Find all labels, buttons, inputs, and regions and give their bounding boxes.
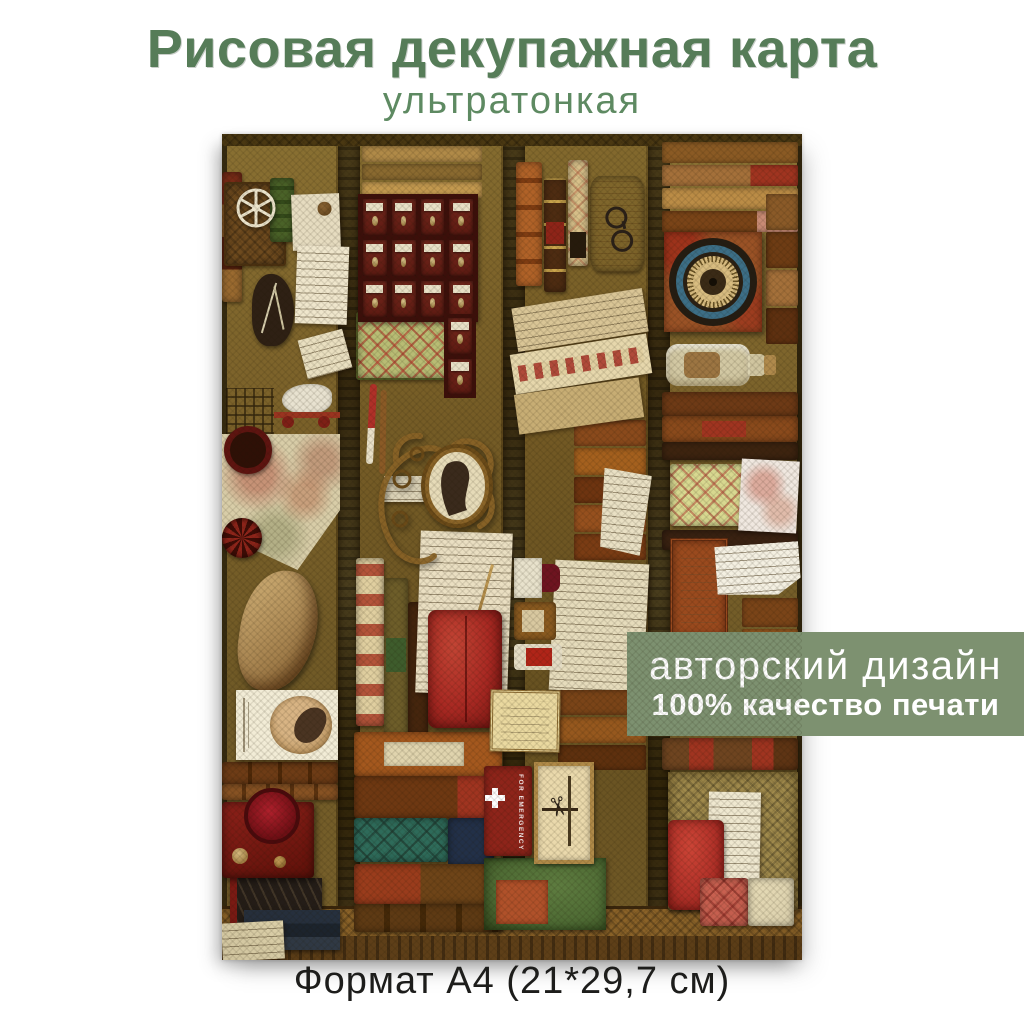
small-bottle	[514, 644, 562, 670]
book-spine	[662, 142, 798, 163]
folded-letter	[714, 541, 801, 599]
toy-wheel	[318, 416, 330, 428]
banner-line-1: авторский дизайн	[649, 645, 1002, 687]
red-cross-icon	[485, 795, 505, 801]
cream-planks	[222, 920, 285, 960]
book-spine	[362, 146, 482, 162]
book-spine	[362, 164, 482, 180]
book-inset-panel	[496, 880, 548, 924]
catalog-drawer	[391, 280, 417, 318]
bottle-cork	[764, 355, 776, 375]
portrait-hair	[289, 702, 330, 748]
first-aid-box: FOR EMERGENCY	[484, 766, 532, 856]
bottle-contents	[684, 352, 720, 378]
film-reel	[234, 184, 278, 232]
product-title: Рисовая декупажная карта	[0, 18, 1024, 80]
book-stack	[362, 146, 482, 198]
cream-book	[748, 878, 794, 926]
card-catalog-cabinet	[358, 194, 478, 322]
catalog-drawer	[391, 198, 417, 236]
tools-display-box: ✂	[534, 762, 594, 864]
spine-label	[546, 222, 564, 244]
catalog-drawer	[447, 317, 473, 355]
apothecary-label-book	[489, 689, 560, 752]
striped-book-spine	[356, 558, 384, 726]
catalog-drawer	[448, 198, 474, 236]
format-caption: Формат А4 (21*29,7 см)	[0, 960, 1024, 1003]
ornament-strip	[518, 346, 645, 382]
spine-label	[384, 742, 464, 766]
book-spine	[766, 232, 798, 268]
book-spine-row	[222, 762, 338, 784]
card-catalog-extension	[444, 314, 476, 398]
patterned-book-cover	[356, 312, 450, 380]
dial-hub	[709, 278, 717, 286]
green-cloth-book	[484, 858, 606, 930]
bottle-glass	[542, 564, 560, 592]
book-spine	[766, 308, 798, 344]
bottle-label	[522, 610, 544, 632]
catalog-drawer	[420, 280, 446, 318]
spine-label	[570, 232, 586, 258]
patterned-book-spine	[568, 160, 588, 266]
product-subtitle: ультратонкая	[0, 80, 1024, 123]
catalog-drawer	[362, 198, 388, 236]
book-spine	[742, 598, 798, 627]
toy-wheel	[282, 416, 294, 428]
velvet-seam	[465, 616, 467, 722]
book-spine-row	[354, 776, 502, 818]
catalog-drawer	[448, 239, 474, 277]
pocket-watch-and-keys	[252, 274, 294, 346]
compass-dial	[669, 238, 757, 326]
label-text-lines	[501, 701, 550, 742]
catalog-drawer	[447, 358, 473, 396]
brass-knob	[274, 856, 286, 868]
toy-horse-body	[282, 384, 332, 414]
catalog-drawer	[362, 280, 388, 318]
book-spine-row	[354, 904, 502, 932]
bottle-label	[526, 648, 552, 666]
catalog-drawer	[420, 239, 446, 277]
cover-label-lines	[681, 551, 717, 625]
book-spine-row	[354, 864, 502, 904]
vintage-card	[291, 193, 341, 251]
bottle-label	[514, 558, 542, 598]
book-stack	[766, 194, 798, 344]
baroque-frame	[372, 424, 507, 574]
wooden-boot-form	[232, 565, 324, 696]
glass-bottle	[666, 344, 776, 386]
wax-seal	[317, 201, 331, 215]
book-spine	[662, 165, 798, 186]
compass-plate	[664, 232, 762, 332]
product-poster: Рисовая декупажная карта ультратонкая	[0, 0, 1024, 1024]
spine-label	[386, 638, 406, 672]
brass-knob	[232, 848, 248, 864]
leather-book-spine	[516, 162, 542, 286]
watch-chain	[273, 286, 284, 329]
book-spine	[384, 578, 408, 736]
amber-bottle	[514, 602, 556, 640]
portrait-oval	[270, 696, 332, 754]
card-text-line	[243, 698, 245, 752]
camera-reel-knob	[244, 788, 300, 844]
book-spine-row	[662, 442, 798, 460]
spine-label	[702, 421, 746, 437]
emergency-label: FOR EMERGENCY	[517, 774, 524, 851]
vintage-camera	[222, 802, 314, 878]
teal-patterned-book	[354, 818, 448, 862]
book-spine-row	[354, 732, 502, 776]
banner-line-2: 100% качество печати	[651, 687, 999, 723]
catalog-drawer	[448, 280, 474, 318]
red-spool-wheel	[224, 426, 272, 474]
pink-patterned-book	[700, 878, 748, 926]
vintage-card	[295, 245, 350, 325]
book-spine-row	[662, 738, 798, 770]
red-rosette-wheel	[222, 518, 262, 558]
catalog-drawer	[362, 239, 388, 277]
book-spine-row	[662, 416, 798, 442]
tool-rod	[568, 776, 571, 846]
book-spine-row	[662, 392, 798, 416]
decoupage-photo: FOR EMERGENCY ✂	[222, 134, 802, 960]
promo-banner: авторский дизайн 100% качество печати	[627, 632, 1024, 736]
catalog-drawer	[391, 239, 417, 277]
card-text-line	[248, 702, 249, 748]
catalog-drawer	[420, 198, 446, 236]
mottled-paper	[738, 459, 800, 534]
book-spine	[766, 270, 798, 306]
medicine-bottle	[514, 558, 560, 598]
leather-book-spine	[544, 178, 566, 292]
book-spine	[766, 194, 798, 230]
portrait-card	[236, 690, 338, 760]
tool-rod	[542, 808, 578, 811]
toy-horse	[274, 384, 340, 428]
